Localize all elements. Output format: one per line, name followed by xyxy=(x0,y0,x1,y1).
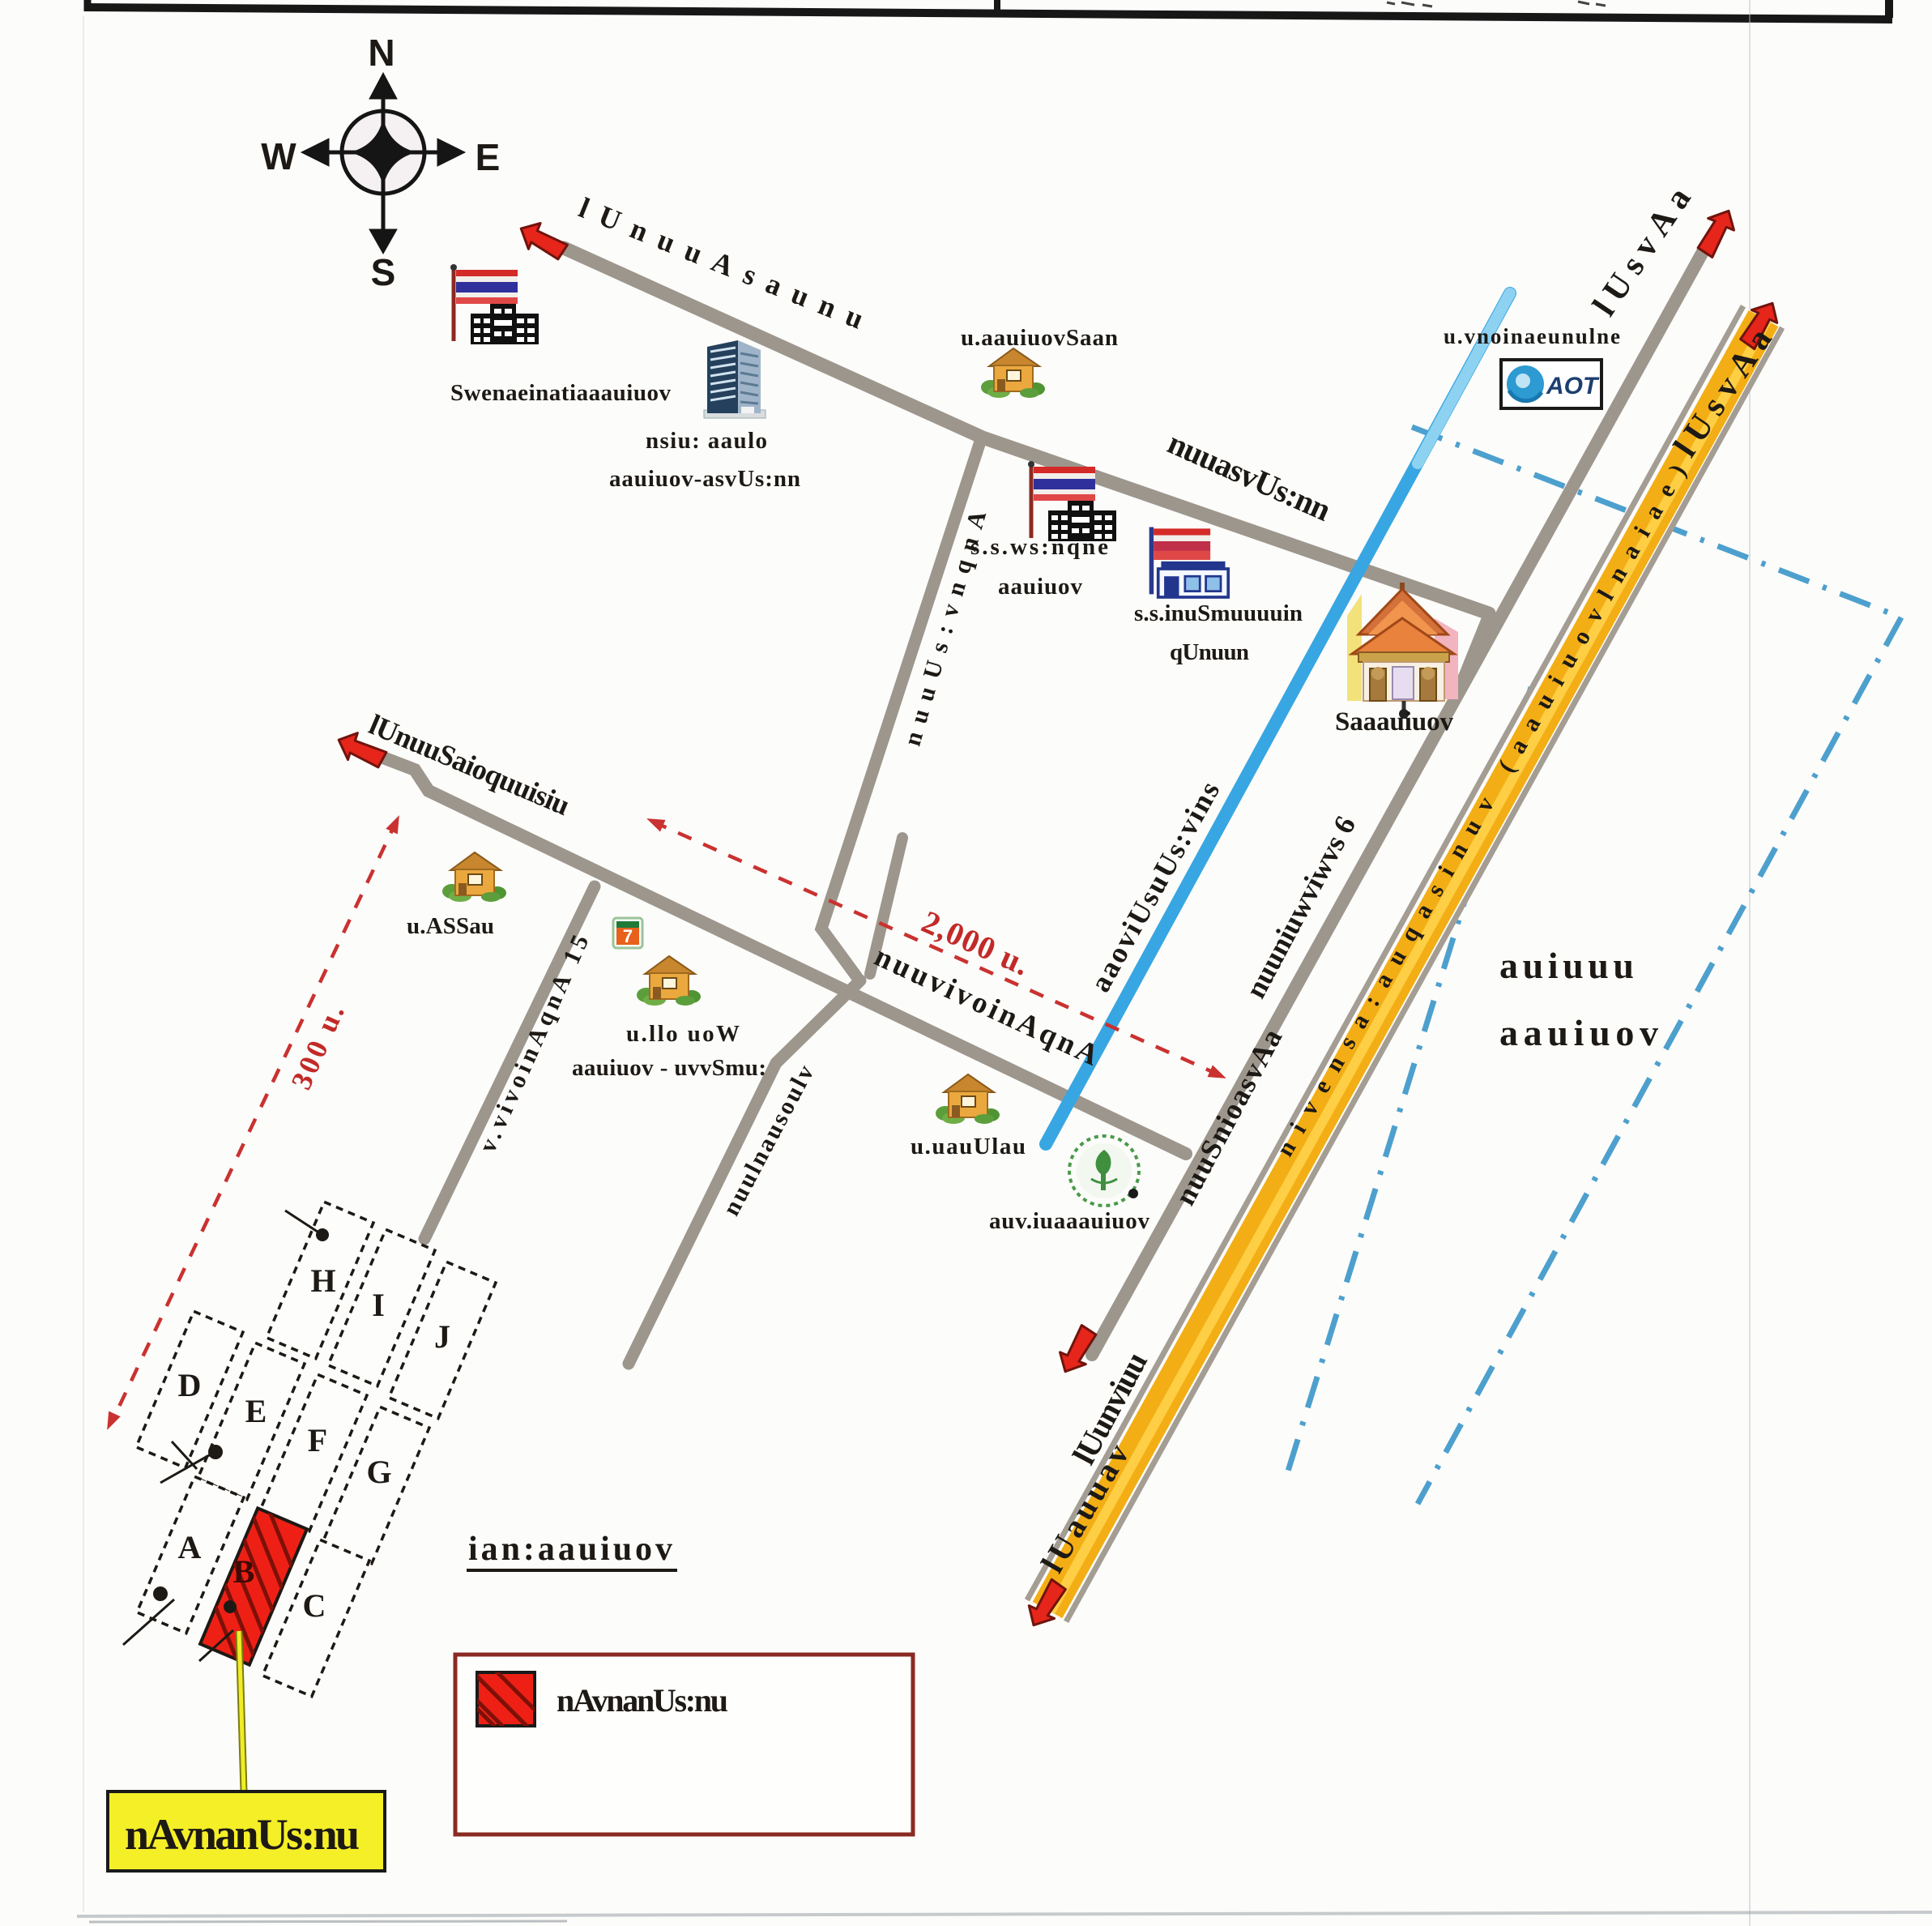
svg-text:aauiuov: aauiuov xyxy=(998,574,1083,600)
svg-text:aauiuov - uvvSmu:: aauiuov - uvvSmu: xyxy=(572,1055,766,1081)
svg-text:AOT: AOT xyxy=(1546,373,1600,399)
svg-text:s.s.inuSmuuuuin: s.s.inuSmuuuuin xyxy=(1134,600,1303,626)
svg-text:J: J xyxy=(434,1318,450,1355)
svg-text:Swenaeinatiaaauiuov: Swenaeinatiaaauiuov xyxy=(450,380,672,406)
svg-text:S: S xyxy=(371,251,396,293)
svg-text:nsiu: aaulo: nsiu: aaulo xyxy=(646,428,767,454)
svg-text:nAvnanUs:nu: nAvnanUs:nu xyxy=(557,1682,728,1719)
svg-text:B: B xyxy=(233,1553,255,1590)
svg-text:u.aauiuovSaan: u.aauiuovSaan xyxy=(961,325,1118,351)
svg-text:I: I xyxy=(372,1287,385,1323)
svg-text:u.ASSau: u.ASSau xyxy=(407,913,494,939)
svg-text:E: E xyxy=(245,1393,267,1429)
svg-text:F: F xyxy=(308,1422,327,1458)
svg-text:aauiuov-asvUs:nn: aauiuov-asvUs:nn xyxy=(609,466,800,492)
svg-text:u.uauUlau: u.uauUlau xyxy=(911,1134,1026,1159)
svg-text:u.llo uoW: u.llo uoW xyxy=(626,1021,740,1047)
svg-text:C: C xyxy=(303,1587,326,1624)
svg-text:E: E xyxy=(476,136,501,178)
svg-text:qUnuun: qUnuun xyxy=(1170,639,1249,665)
svg-text:G: G xyxy=(366,1454,391,1490)
svg-text:Saaauiuov: Saaauiuov xyxy=(1335,707,1454,737)
svg-text:N: N xyxy=(368,32,395,74)
svg-text:A: A xyxy=(178,1529,202,1565)
svg-text:u.vnoinaeunulne: u.vnoinaeunulne xyxy=(1444,324,1620,348)
svg-text:W: W xyxy=(261,135,296,177)
svg-text:auv.iuaaauiuov: auv.iuaaauiuov xyxy=(989,1208,1150,1234)
svg-text:nAvnanUs:nu: nAvnanUs:nu xyxy=(125,1810,360,1859)
svg-text:D: D xyxy=(178,1367,202,1403)
svg-text:H: H xyxy=(310,1262,335,1299)
svg-text:7: 7 xyxy=(623,926,633,946)
